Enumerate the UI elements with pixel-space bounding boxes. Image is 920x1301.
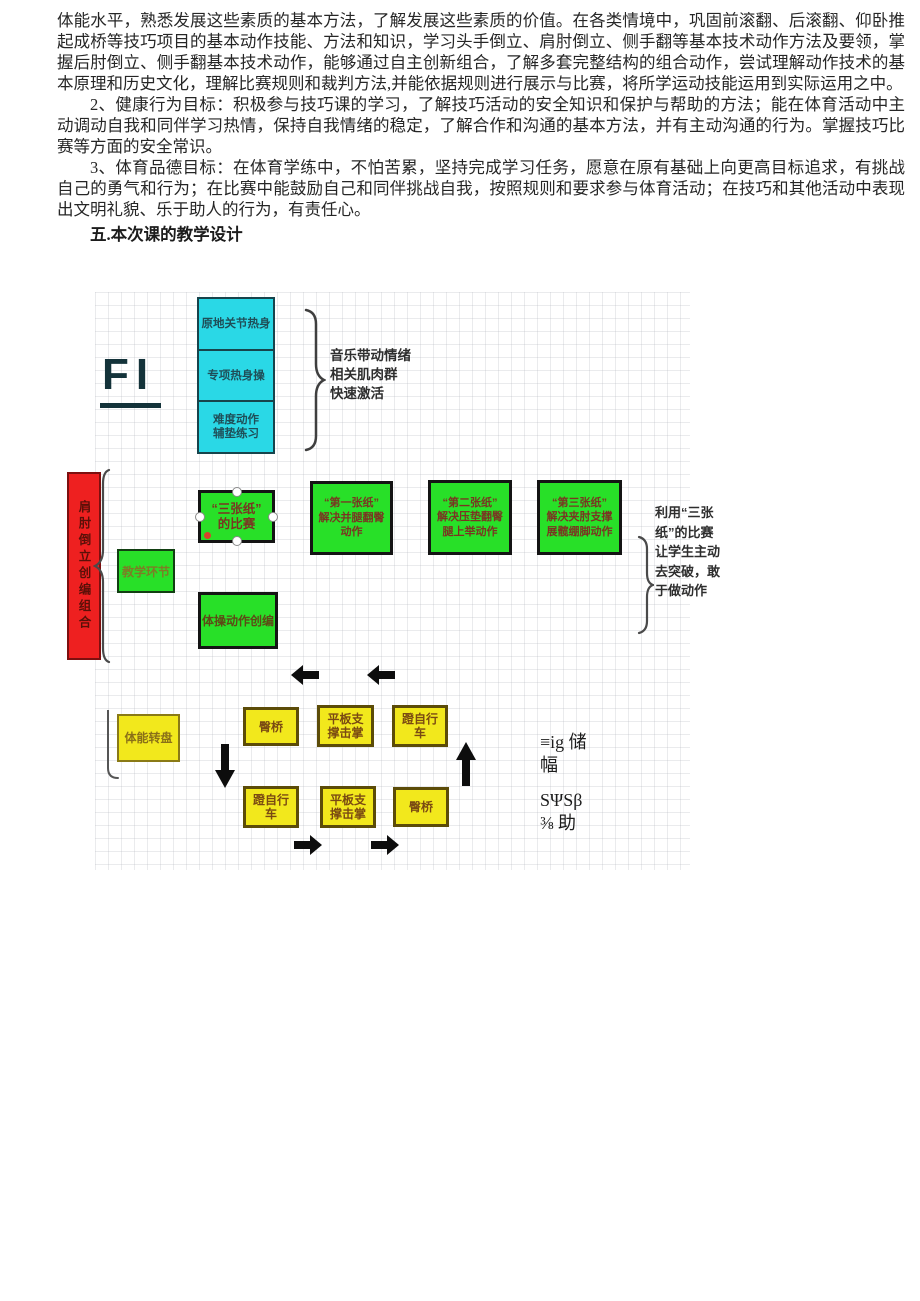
warmup-box-label: 辅垫练习: [213, 427, 259, 441]
warmup-box-label: 原地关节热身: [202, 317, 271, 331]
arrow-up-icon: [456, 742, 476, 786]
arrow-right-icon: [371, 835, 399, 855]
selection-handle: [232, 487, 242, 497]
paper-note: 利用“三张 纸”的比赛 让学生主动 去突破，敢 于做动作: [655, 503, 731, 601]
circuit-box-bicycle-top: 蹬自行 车: [392, 705, 448, 747]
brace-right-icon: [302, 308, 326, 452]
paper-note-line: 让学生主动: [655, 542, 731, 562]
warmup-box-joint: 原地关节热身: [197, 297, 275, 351]
paper-box-2: “第二张纸” 解决压垫翻臀 腿上举动作: [428, 480, 512, 555]
paper-note-line: 纸”的比赛: [655, 523, 731, 543]
connector-dot: [204, 532, 211, 539]
circuit-box-plank-bottom: 平板支 撑击掌: [320, 786, 376, 828]
contest-box-label: “三张纸”: [211, 502, 261, 517]
fitness-box-label: 体能转盘: [124, 731, 172, 745]
paper-box-3: “第三张纸” 解决夹肘支撑 展髋绷脚动作: [537, 480, 622, 555]
ocr-artifact-line: SΨSβ: [540, 789, 582, 812]
circuit-box-label: 车: [414, 726, 426, 740]
ocr-artifact-line: ⅜ 助: [540, 812, 582, 835]
figure-label: FI: [100, 352, 161, 408]
fitness-box: 体能转盘: [117, 714, 180, 762]
warmup-note: 音乐带动情绪 相关肌肉群 快速激活: [330, 346, 411, 403]
paper-box-line: 动作: [341, 525, 363, 540]
brace-left-icon: [93, 468, 113, 664]
paper-box-line: “第二张纸”: [443, 496, 498, 511]
warmup-box-label: 难度动作: [213, 413, 259, 427]
paper-box-line: 解决夹肘支撑: [547, 510, 613, 525]
brace-right-icon: [636, 535, 654, 635]
arrow-right-icon: [294, 835, 322, 855]
selection-handle: [195, 512, 205, 522]
contest-box-label: 的比赛: [218, 517, 256, 532]
paper-box-line: “第一张纸”: [324, 496, 379, 511]
circuit-box-bicycle-bottom: 蹬自行 车: [243, 786, 299, 828]
selection-handle: [232, 536, 242, 546]
arrow-left-icon: [367, 665, 395, 685]
circuit-box-label: 撑击掌: [327, 726, 363, 740]
paper-note-line: 于做动作: [655, 581, 731, 601]
arrow-down-icon: [215, 744, 235, 788]
paper-note-line: 去突破，敢: [655, 562, 731, 582]
warmup-note-line: 快速激活: [330, 384, 411, 403]
paper-box-line: 腿上举动作: [443, 525, 498, 540]
circuit-box-label: 平板支: [327, 712, 363, 726]
circuit-box-label: 蹬自行: [402, 712, 438, 726]
contest-box: “三张纸” 的比赛: [198, 490, 275, 543]
teaching-step-box: 教学环节: [117, 549, 175, 593]
circuit-box-label: 撑击掌: [330, 807, 366, 821]
ocr-artifact-text: SΨSβ ⅜ 助: [540, 789, 582, 835]
selection-handle: [268, 512, 278, 522]
circuit-box-label: 臀桥: [409, 800, 433, 814]
paper-box-line: 解决压垫翻臀: [437, 510, 503, 525]
warmup-box-label: 专项热身操: [207, 369, 265, 383]
ocr-artifact-line: 幅: [540, 754, 587, 777]
warmup-note-line: 音乐带动情绪: [330, 346, 411, 365]
paper-note-line: 利用“三张: [655, 503, 731, 523]
teaching-step-label: 教学环节: [122, 563, 170, 580]
ocr-artifact-text: ≡ig 储 幅: [540, 731, 587, 777]
paper-box-1: “第一张纸” 解决并腿翻臀 动作: [310, 481, 393, 555]
warmup-box-special: 专项热身操: [197, 349, 275, 403]
ocr-artifact-line: ≡ig 储: [540, 731, 587, 754]
paper-box-line: 展髋绷脚动作: [547, 525, 613, 540]
circuit-box-bridge-bottom: 臀桥: [393, 787, 449, 827]
document-page: 体能水平，熟悉发展这些素质的基本方法，了解发展这些素质的价值。在各类情境中，巩固…: [0, 0, 920, 1301]
warmup-box-mat: 难度动作 辅垫练习: [197, 400, 275, 454]
circuit-box-label: 平板支: [330, 793, 366, 807]
creative-box-label: 体操动作创编: [202, 612, 274, 629]
paper-box-line: 解决并腿翻臀: [319, 511, 385, 526]
circuit-box-bridge-top: 臀桥: [243, 707, 299, 746]
creative-box: 体操动作创编: [198, 592, 278, 649]
circuit-box-label: 蹬自行: [253, 793, 289, 807]
warmup-note-line: 相关肌肉群: [330, 365, 411, 384]
circuit-box-label: 臀桥: [259, 720, 283, 734]
teaching-design-diagram: FI 原地关节热身 专项热身操 难度动作 辅垫练习 音乐带动情绪 相关肌肉群 快…: [0, 0, 920, 1301]
warmup-column: 原地关节热身 专项热身操 难度动作 辅垫练习: [197, 297, 275, 454]
circuit-box-label: 车: [265, 807, 277, 821]
paper-box-line: “第三张纸”: [552, 496, 607, 511]
circuit-box-plank-top: 平板支 撑击掌: [317, 705, 374, 747]
arrow-left-icon: [291, 665, 319, 685]
phase-box-label: 肩肘倒立创编组合: [75, 500, 94, 632]
